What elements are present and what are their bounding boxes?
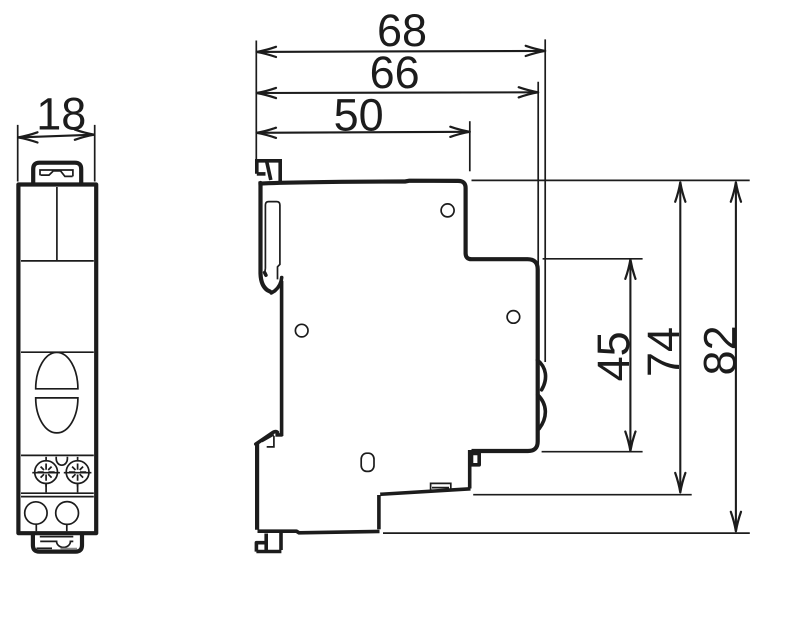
- svg-text:74: 74: [638, 327, 689, 377]
- svg-text:45: 45: [588, 331, 639, 381]
- svg-text:82: 82: [695, 325, 746, 375]
- svg-text:18: 18: [36, 88, 86, 139]
- svg-text:50: 50: [334, 90, 384, 141]
